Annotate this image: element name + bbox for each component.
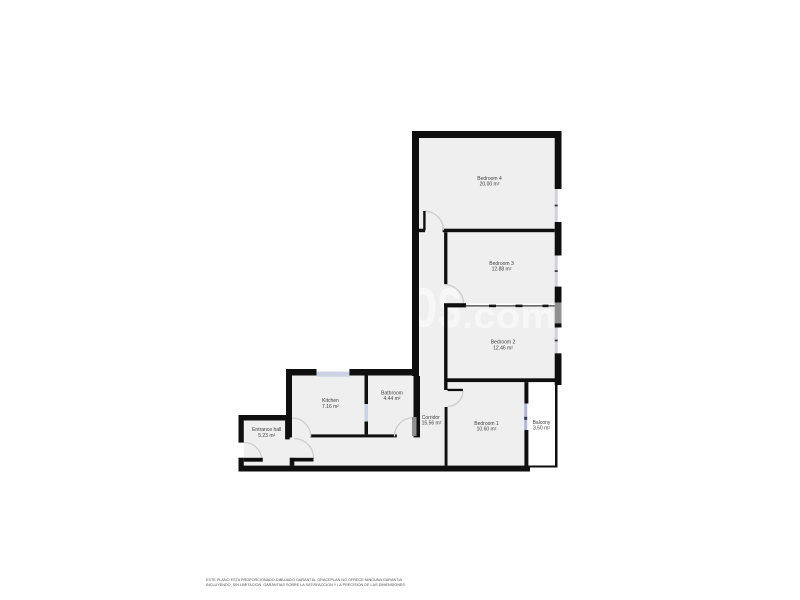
svg-text:20.00 m²: 20.00 m²: [480, 182, 500, 188]
svg-text:7.16 m²: 7.16 m²: [322, 404, 339, 410]
svg-text:10.60 m²: 10.60 m²: [477, 427, 497, 433]
svg-text:ESTE PLANO ESTA PROPORCIONADO-: ESTE PLANO ESTA PROPORCIONADO-DIBUJADO G…: [206, 578, 403, 582]
svg-text:4.44 m²: 4.44 m²: [384, 396, 401, 402]
svg-text:12.46 m²: 12.46 m²: [493, 345, 513, 351]
svg-text:.com: .com: [462, 296, 556, 337]
svg-text:3.60 m²: 3.60 m²: [533, 426, 550, 432]
svg-text:5.23 m²: 5.23 m²: [258, 433, 275, 439]
svg-text:INCLUYENDO, SIN LIMITACION, GA: INCLUYENDO, SIN LIMITACION, GARANTIAS SO…: [206, 583, 406, 587]
svg-text:15.56 m²: 15.56 m²: [422, 421, 442, 427]
svg-text:12.88 m²: 12.88 m²: [492, 267, 512, 273]
